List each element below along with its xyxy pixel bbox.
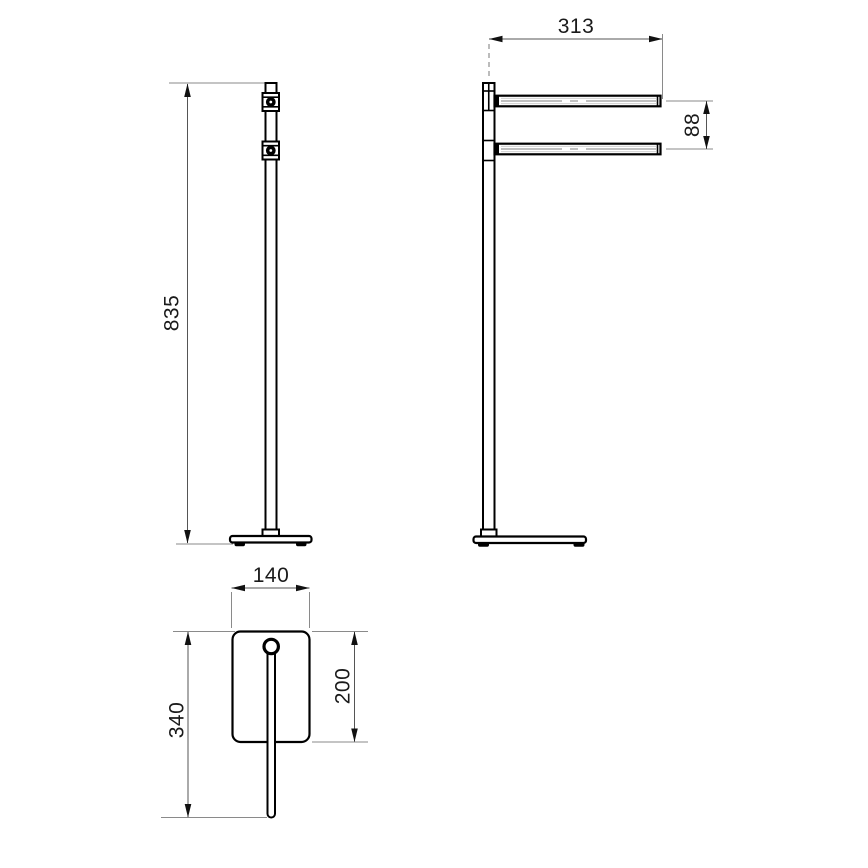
arrow-left-icon [232, 585, 246, 592]
dim-text-bar-length: 313 [558, 15, 595, 38]
dim-bar-spacing: 88 [666, 101, 713, 149]
side-view: 313 88 [474, 15, 714, 547]
arrow-right-icon [649, 36, 663, 43]
front-view: 835 [161, 83, 312, 546]
bar-clamp-lower-front [263, 142, 280, 160]
dim-text-overall-depth: 340 [166, 702, 189, 739]
arrow-up-icon [351, 632, 358, 646]
screw-center-dot [269, 101, 272, 104]
technical-drawing-canvas: 835 [0, 0, 868, 868]
arrow-down-icon [185, 804, 192, 818]
base-plate-side [474, 537, 587, 544]
dim-text-base-depth: 200 [332, 668, 355, 705]
arrow-up-icon [185, 632, 192, 646]
arrow-down-icon [351, 729, 358, 743]
arrow-up-icon [184, 84, 191, 98]
foot-icon [296, 542, 307, 546]
foot-icon [478, 542, 489, 546]
towel-bar-upper [495, 96, 661, 107]
arrow-down-icon [703, 136, 710, 149]
towel-bar-lower [495, 144, 661, 155]
dim-text-bar-spacing: 88 [681, 113, 704, 137]
bar-mount [495, 144, 500, 155]
arrow-down-icon [184, 530, 191, 544]
pole-cross-section [264, 639, 278, 653]
arrow-right-icon [296, 585, 310, 592]
foot-icon [235, 542, 246, 546]
top-view: 140 340 200 [161, 564, 368, 818]
dim-base-depth: 200 [312, 632, 368, 743]
pole-side [483, 83, 495, 537]
screw-center-dot [269, 149, 272, 152]
towel-bar-top [268, 646, 276, 818]
dim-bar-length: 313 [489, 15, 663, 99]
arrow-left-icon [489, 36, 503, 43]
drawing-page: 835 [0, 0, 868, 868]
dim-text-base-width: 140 [253, 564, 290, 587]
base-plate-front [230, 536, 312, 543]
dim-height: 835 [161, 83, 267, 544]
foot-icon [574, 542, 585, 546]
arrow-up-icon [703, 101, 710, 114]
bar-mount [495, 96, 500, 107]
dim-text-height: 835 [161, 295, 184, 332]
bar-clamp-upper-front [263, 93, 280, 111]
dim-base-width: 140 [232, 564, 310, 628]
